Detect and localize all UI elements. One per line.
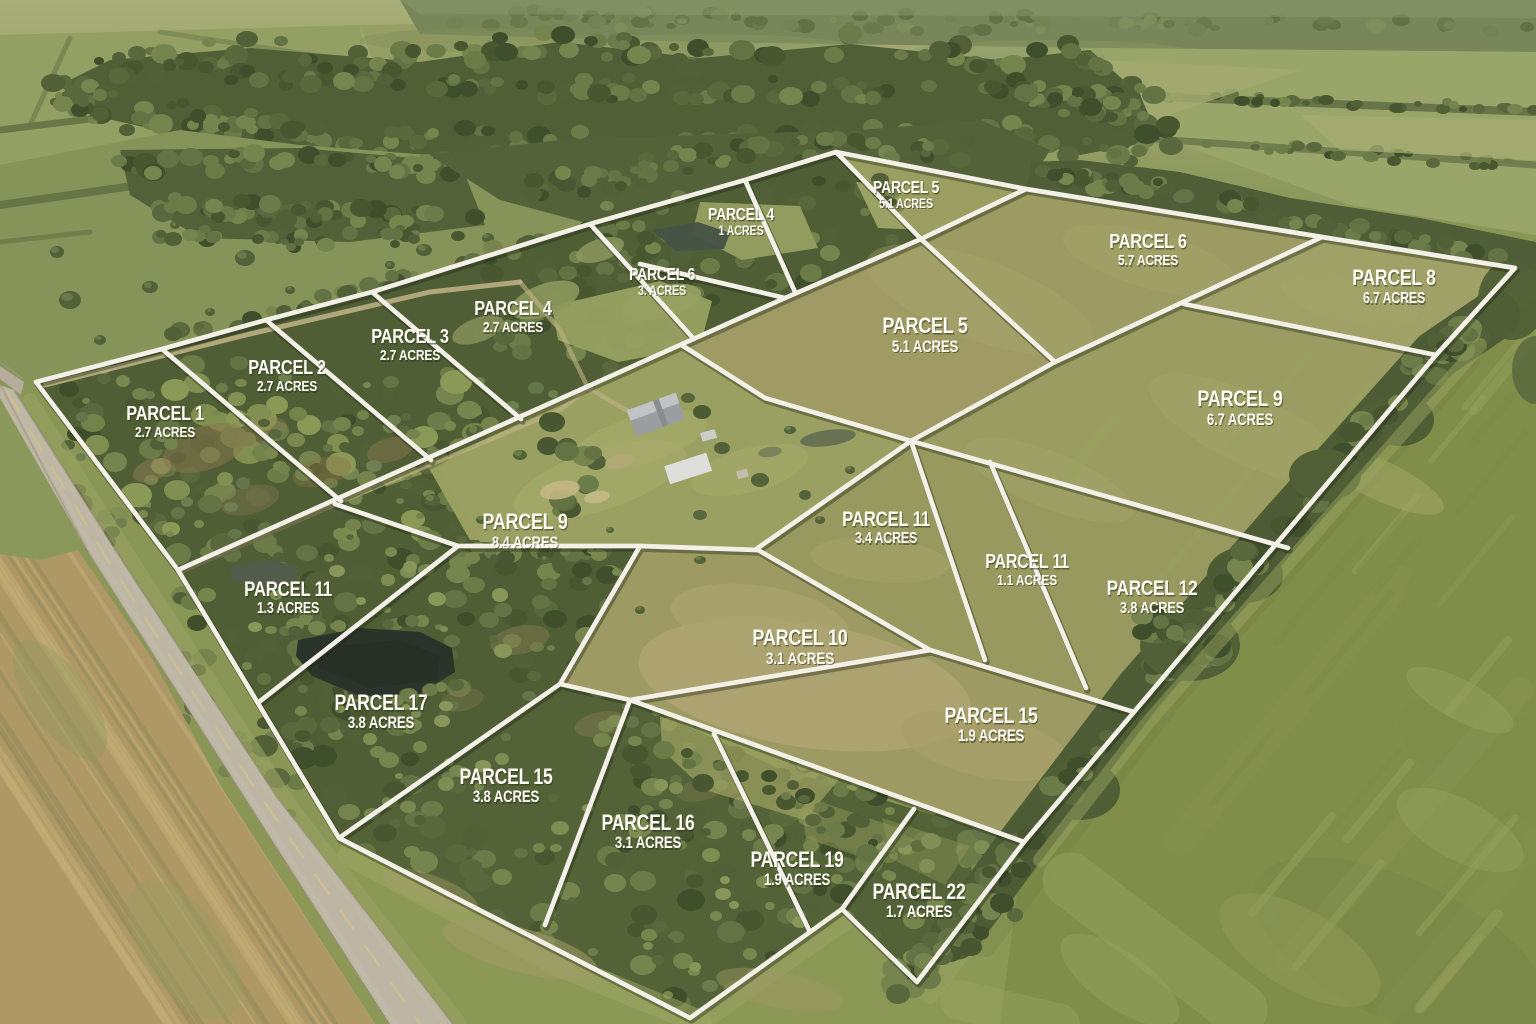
svg-text:PARCEL 11: PARCEL 11 xyxy=(985,550,1069,572)
svg-text:1.3 ACRES: 1.3 ACRES xyxy=(257,599,319,617)
svg-text:PARCEL 1: PARCEL 1 xyxy=(126,401,204,424)
svg-text:PARCEL 15: PARCEL 15 xyxy=(460,765,553,789)
svg-text:PARCEL 6: PARCEL 6 xyxy=(1109,229,1187,252)
svg-text:PARCEL 4: PARCEL 4 xyxy=(474,296,552,319)
svg-text:PARCEL 5: PARCEL 5 xyxy=(882,314,967,338)
svg-text:5.1 ACRES: 5.1 ACRES xyxy=(879,196,933,211)
svg-text:6.7 ACRES: 6.7 ACRES xyxy=(1363,289,1425,307)
svg-text:PARCEL 6: PARCEL 6 xyxy=(629,266,695,285)
svg-text:6.7 ACRES: 6.7 ACRES xyxy=(1207,411,1273,430)
svg-text:PARCEL 9: PARCEL 9 xyxy=(1197,387,1282,411)
svg-text:3.8 ACRES: 3.8 ACRES xyxy=(1120,600,1185,618)
svg-text:1.9 ACRES: 1.9 ACRES xyxy=(958,727,1024,746)
svg-text:PARCEL 15: PARCEL 15 xyxy=(945,704,1038,728)
svg-text:2.7 ACRES: 2.7 ACRES xyxy=(135,424,195,441)
svg-text:2.7 ACRES: 2.7 ACRES xyxy=(257,378,317,395)
svg-text:3.8 ACRES: 3.8 ACRES xyxy=(473,788,539,807)
svg-text:PARCEL 4: PARCEL 4 xyxy=(708,206,774,225)
svg-text:3.8 ACRES: 3.8 ACRES xyxy=(348,714,414,733)
svg-text:5.1 ACRES: 5.1 ACRES xyxy=(892,338,958,357)
svg-text:PARCEL 5: PARCEL 5 xyxy=(873,179,939,198)
svg-text:2.7 ACRES: 2.7 ACRES xyxy=(483,319,543,336)
svg-text:PARCEL 3: PARCEL 3 xyxy=(371,324,449,347)
svg-text:1.1 ACRES: 1.1 ACRES xyxy=(997,572,1057,589)
svg-text:PARCEL 19: PARCEL 19 xyxy=(751,848,844,872)
svg-text:1 ACRES: 1 ACRES xyxy=(718,223,763,238)
svg-text:5.7 ACRES: 5.7 ACRES xyxy=(1118,252,1178,269)
svg-text:PARCEL 17: PARCEL 17 xyxy=(335,691,428,715)
svg-text:1.7 ACRES: 1.7 ACRES xyxy=(886,903,952,922)
svg-text:PARCEL 8: PARCEL 8 xyxy=(1352,266,1436,290)
svg-text:3.4 ACRES: 3.4 ACRES xyxy=(855,529,917,547)
svg-text:PARCEL 22: PARCEL 22 xyxy=(873,880,966,904)
svg-text:3.1 ACRES: 3.1 ACRES xyxy=(766,650,834,669)
svg-text:2.7 ACRES: 2.7 ACRES xyxy=(380,347,440,364)
svg-text:1.9 ACRES: 1.9 ACRES xyxy=(764,871,830,890)
svg-text:PARCEL 16: PARCEL 16 xyxy=(602,811,695,835)
svg-text:PARCEL 12: PARCEL 12 xyxy=(1107,576,1198,600)
svg-text:PARCEL 9: PARCEL 9 xyxy=(482,510,567,534)
svg-text:3.1 ACRES: 3.1 ACRES xyxy=(615,834,681,853)
svg-text:PARCEL 10: PARCEL 10 xyxy=(752,626,847,650)
svg-text:PARCEL 2: PARCEL 2 xyxy=(248,355,326,378)
svg-text:3. ACRES: 3. ACRES xyxy=(638,283,686,298)
svg-text:8.4 ACRES: 8.4 ACRES xyxy=(492,534,558,553)
